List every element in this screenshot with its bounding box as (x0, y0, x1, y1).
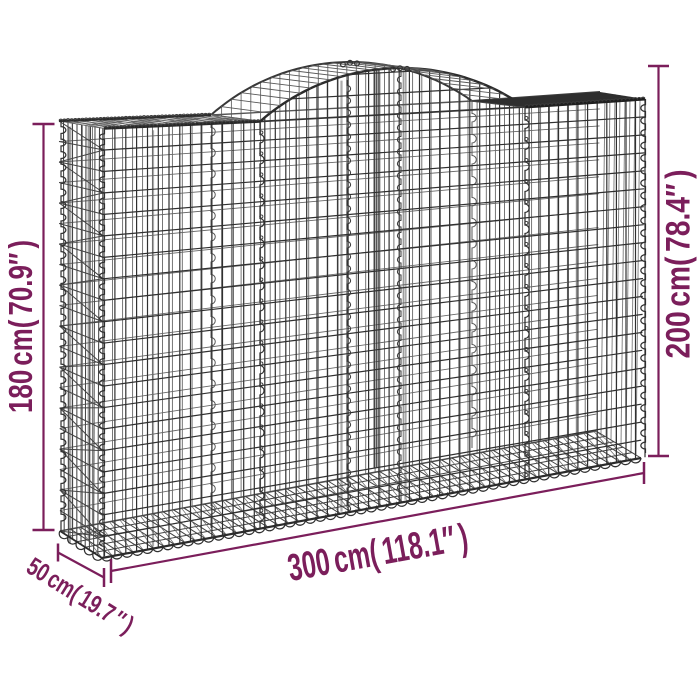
svg-text:200 cm( 78.4″ ): 200 cm( 78.4″ ) (660, 170, 698, 359)
svg-text:180 cm( 70.9″ ): 180 cm( 70.9″ ) (2, 240, 39, 413)
